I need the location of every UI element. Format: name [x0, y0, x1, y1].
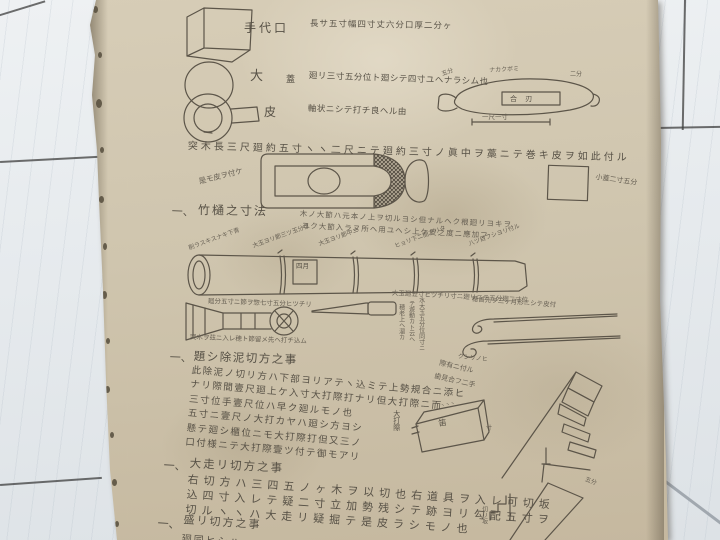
- skin-label: 皮: [264, 106, 276, 119]
- paper-sheet: 手代口 長サ五寸幅四寸丈六分口厚二分ヶ 大 蓋 廻リ三寸五分位ト廻シテ四寸ユヘナ…: [0, 0, 720, 540]
- bamboo-annotation: 大玉ヨリ節三ツ玉分位: [252, 223, 311, 250]
- section4-number: 一、: [157, 518, 180, 532]
- edge-spot: [100, 147, 104, 153]
- small-knife-diagram: [310, 299, 400, 319]
- small-lid-square-diagram: [544, 162, 594, 206]
- tick-mark: [541, 448, 551, 466]
- section1-number: 一、: [172, 206, 194, 219]
- bamboo-stamp-text: 四月: [296, 263, 309, 270]
- circle-label: 大: [250, 70, 263, 84]
- wrapped-mallet-diagram: [258, 152, 454, 212]
- edge-spot: [96, 99, 102, 108]
- edge-spot: [115, 521, 119, 527]
- hook-annotation-2: クシリノヒ: [457, 354, 488, 364]
- edge-spot: [93, 6, 98, 13]
- edge-spot: [102, 291, 107, 299]
- edge-spot: [110, 432, 114, 438]
- small-step-label: 切リ坂: [480, 506, 487, 540]
- paper-torn-left-edge: [88, 0, 108, 540]
- section2-title: 題シ除泥切方之事: [194, 350, 298, 366]
- wedge-right-mark: 寸: [486, 426, 492, 433]
- edge-spot: [103, 243, 107, 250]
- section4-partial-line: 廻同ヒシハ: [181, 534, 241, 540]
- wedge-inner-text: 笛: [438, 419, 447, 429]
- knife-column-note: テ遊動カト云ヘ: [407, 300, 414, 358]
- edge-spot: [99, 196, 104, 203]
- spindle-right-note: 二分: [570, 72, 582, 79]
- section3-number: 一、: [163, 460, 186, 473]
- section3-title: 大走リ切方之事: [189, 457, 284, 475]
- knife-column-note: 水大玉五分位同寸ニ: [417, 297, 424, 359]
- knife-column-note: 穂老上ヘ溜カ: [397, 304, 404, 358]
- photo-of-old-japanese-manual-page: 手代口 長サ五寸幅四寸丈六分口厚二分ヶ 大 蓋 廻リ三寸五分位ト廻シテ四寸ユヘナ…: [0, 0, 720, 540]
- kore-note: 是モ皮ヲ付ケ: [198, 167, 244, 186]
- hook-tools-diagram: [452, 306, 624, 358]
- spindle-length-note: 一尺一寸: [482, 114, 508, 121]
- wedge-block-diagram: [406, 400, 494, 458]
- paper-sheet-wrap: 手代口 長サ五寸幅四寸丈六分口厚二分ヶ 大 蓋 廻リ三寸五分位ト廻シテ四寸ユヘナ…: [0, 0, 720, 540]
- paper-right-edge-shadow: [646, 0, 664, 540]
- section4-title: 盛リ切方之事: [183, 514, 262, 532]
- circle-sublabel: 蓋: [286, 76, 295, 86]
- edge-spot: [105, 386, 110, 393]
- ring-with-tab-diagram: [180, 92, 266, 146]
- box-dimension-note: 長サ五寸幅四寸丈六分口厚二分ヶ: [310, 20, 453, 32]
- edge-spot: [98, 52, 102, 58]
- skin-note: 軸状ニシテ打チ良ヘル由: [308, 105, 407, 118]
- section2-number: 一、: [170, 352, 192, 365]
- small-lid-label: 小蓋二寸五分: [595, 174, 638, 187]
- spindle-inner-text: 合 刃: [510, 96, 535, 104]
- section1-title: 竹樋之寸法: [198, 204, 268, 218]
- wedge-label: 大打際: [392, 410, 400, 456]
- edge-spot: [112, 479, 117, 486]
- edge-spot: [106, 338, 110, 344]
- box-label: 手代口: [244, 22, 289, 35]
